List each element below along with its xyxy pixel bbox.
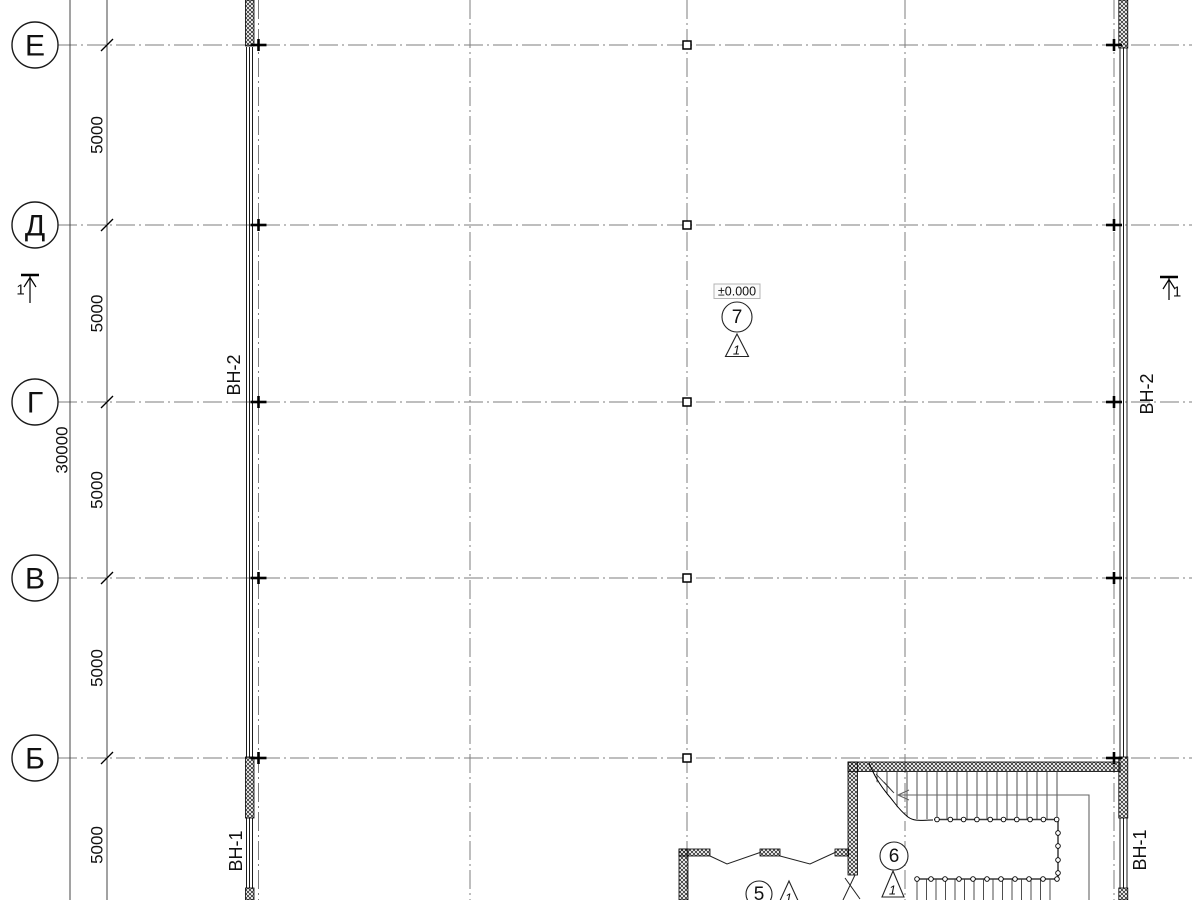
section-mark-right: 1 xyxy=(1160,277,1181,301)
axis-label: Г xyxy=(27,387,43,420)
bay-dimension: 5000 xyxy=(88,649,107,687)
rail-balusters xyxy=(915,817,1061,881)
stair-rails xyxy=(917,820,1058,880)
axis-bubble-row-d: Д xyxy=(12,202,58,248)
dimension-labels: 5000 5000 5000 5000 5000 30000 xyxy=(53,116,107,864)
left-exterior-wall xyxy=(246,0,255,900)
room-number: 7 xyxy=(732,307,743,328)
axis-bubble-row-e: Е xyxy=(12,22,58,68)
plan-drawing: ±0.000 7 1 6 1 5 1 1 1 Е Д Г xyxy=(0,0,1200,900)
room-marker-5: 5 1 xyxy=(746,881,800,900)
axis-bubble-row-b: Б xyxy=(12,735,58,781)
bay-dimension: 5000 xyxy=(88,295,107,333)
level-mark-value: ±0.000 xyxy=(718,285,756,299)
section-number: 1 xyxy=(1173,284,1181,301)
level-mark: ±0.000 xyxy=(714,284,760,299)
room-marker-7: 7 1 xyxy=(722,302,752,358)
axis-bubble-row-v: В xyxy=(12,555,58,601)
zone-number: 1 xyxy=(733,343,740,358)
section-mark-left: 1 xyxy=(16,275,39,303)
bay-dimension: 5000 xyxy=(88,471,107,509)
wall-tag-vn2-left: ВН-2 xyxy=(224,354,244,395)
wall-tag-vn1-left: ВН-1 xyxy=(226,830,246,871)
axis-bubble-row-g: Г xyxy=(12,379,58,425)
bay-dimension: 5000 xyxy=(88,826,107,864)
axis-label: Д xyxy=(25,210,45,243)
total-dimension: 30000 xyxy=(53,426,72,473)
axis-bubbles: Е Д Г В Б xyxy=(12,22,58,781)
axis-label: В xyxy=(25,563,45,596)
bay-dimension: 5000 xyxy=(88,116,107,154)
wall-tag-vn1-right: ВН-1 xyxy=(1130,829,1150,870)
room-number: 5 xyxy=(754,884,765,900)
room-marker-6: 6 1 xyxy=(880,842,908,898)
zone-number: 1 xyxy=(889,883,896,898)
floor-plan-sheet: ±0.000 7 1 6 1 5 1 1 1 Е Д Г xyxy=(0,0,1200,900)
staircase xyxy=(848,762,1120,900)
zone-number: 1 xyxy=(785,891,792,900)
wall-tag-vn2-right: ВН-2 xyxy=(1137,373,1157,414)
room-number: 6 xyxy=(889,846,900,867)
axis-label: Б xyxy=(25,743,45,776)
section-number: 1 xyxy=(16,282,24,299)
axis-label: Е xyxy=(25,30,45,63)
